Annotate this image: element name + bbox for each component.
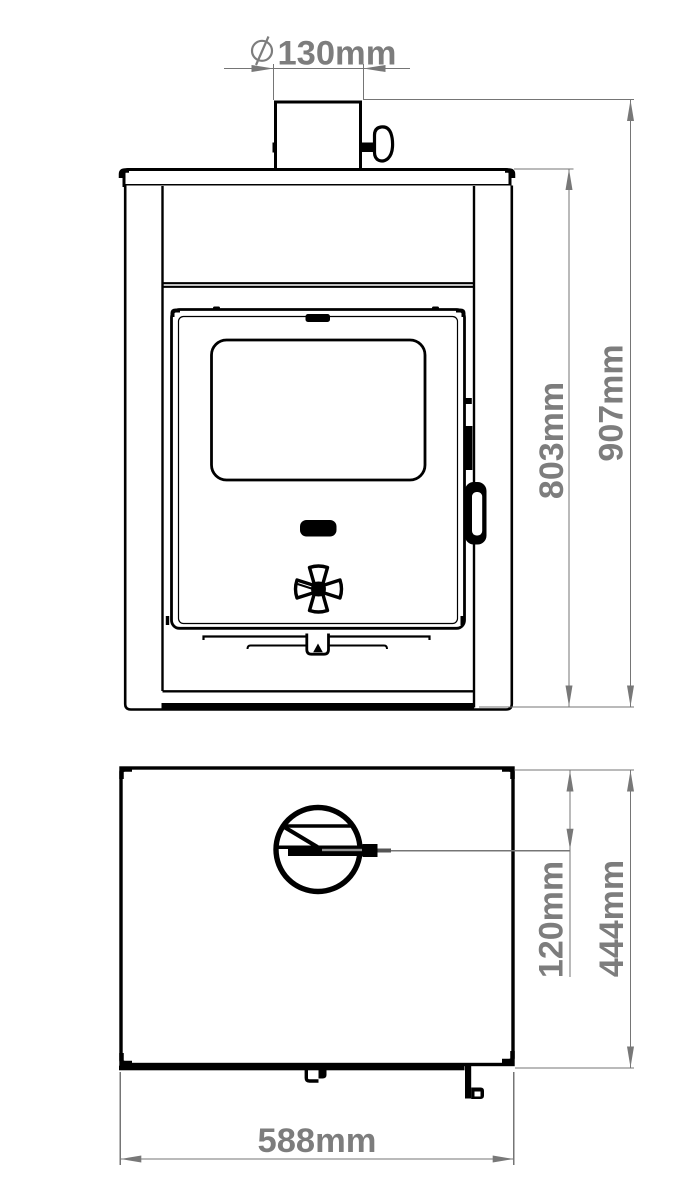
svg-text:907mm: 907mm [593,344,631,461]
svg-text:444mm: 444mm [593,860,631,977]
svg-text:588mm: 588mm [258,1122,377,1160]
svg-text:130mm: 130mm [278,35,397,73]
svg-text:120mm: 120mm [533,861,571,978]
svg-text:803mm: 803mm [533,382,571,499]
